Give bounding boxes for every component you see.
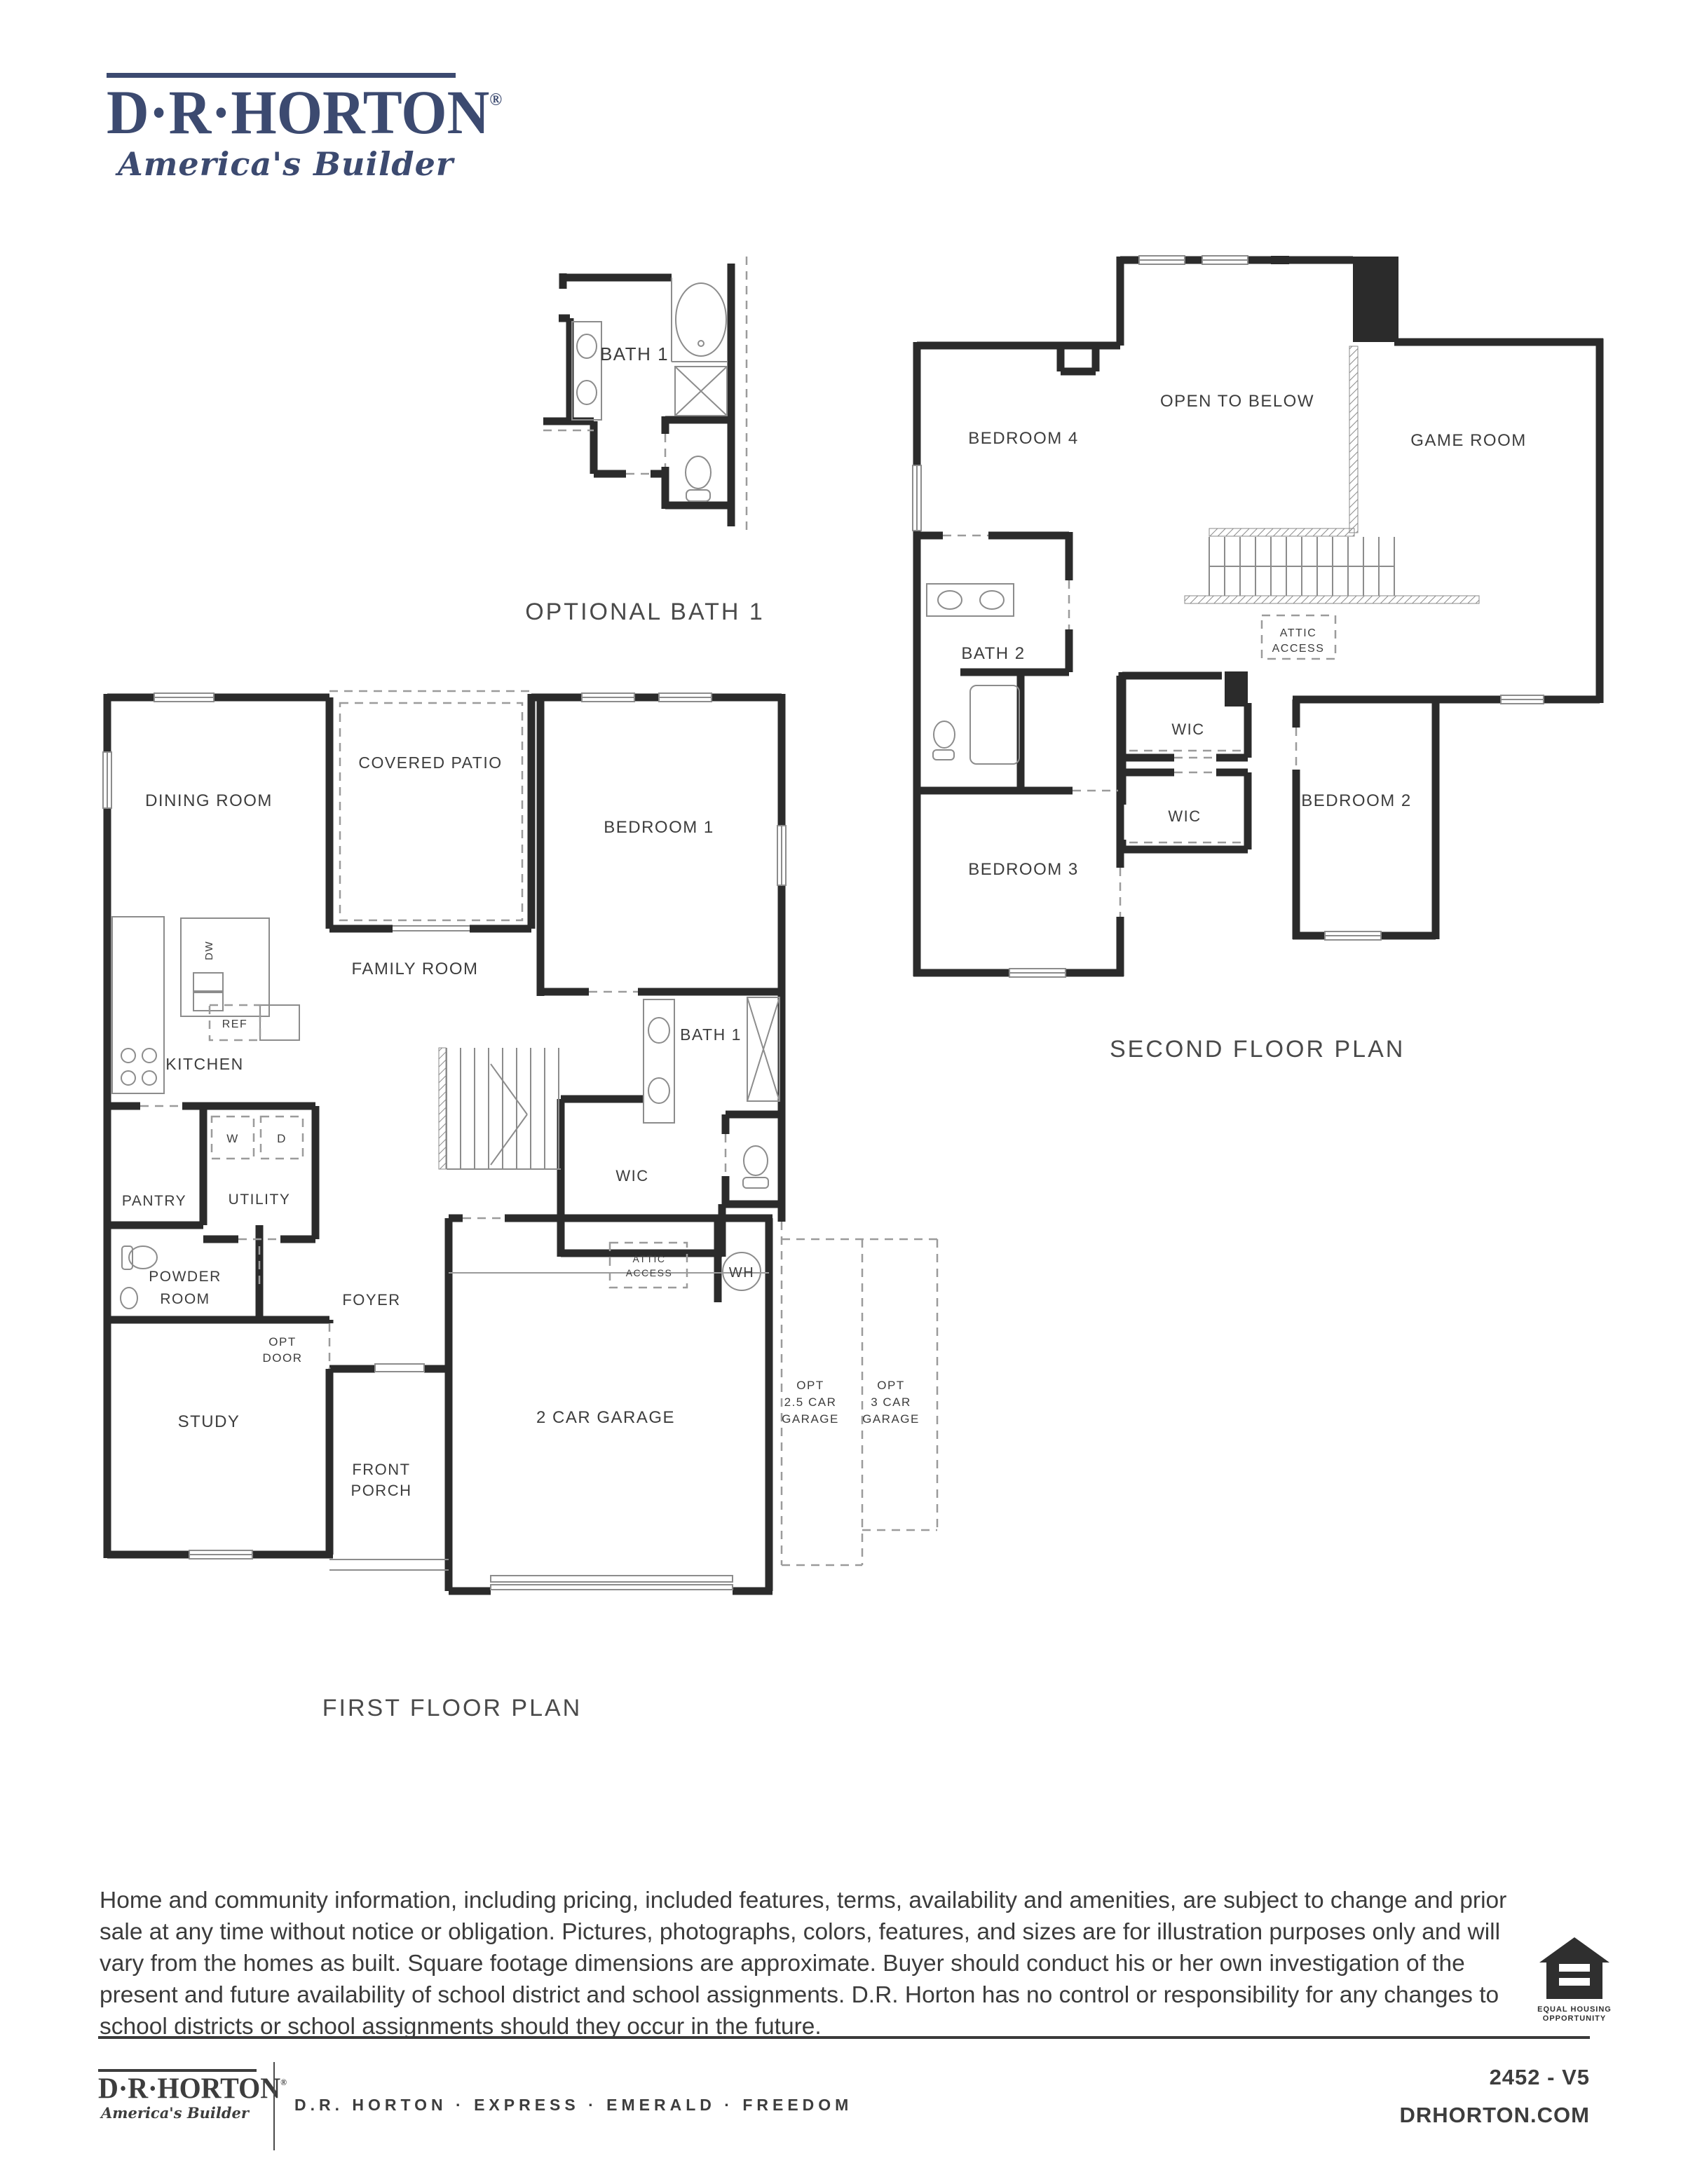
porch-steps [329,1559,449,1570]
label-study: STUDY [178,1412,240,1431]
floorplan-brochure-page: D·R·HORTON® America's Builder [0,0,1688,2184]
website-link[interactable]: DRHORTON.COM [1400,2103,1590,2128]
label-bedroom4: BEDROOM 4 [968,429,1079,448]
label-ref: REF [222,1018,248,1030]
label-opt3-2: 3 CAR [871,1395,911,1409]
label-opt3-3: GARAGE [862,1412,920,1426]
toilet-icon [686,456,711,489]
label-opt-door-1: OPT [268,1335,296,1349]
equal-housing-logo: EQUAL HOUSING OPPORTUNITY [1532,1936,1616,2023]
stairs-icon [1209,537,1394,596]
label-opt-door-2: DOOR [263,1351,303,1365]
front-door-icon [375,1364,424,1372]
label-wh: WH [729,1265,754,1281]
label-foyer: FOYER [342,1291,400,1309]
toilet-icon [744,1146,768,1175]
cooktop-icon [121,1049,135,1063]
label-dw: DW [203,941,215,960]
vanity-icon [927,584,1014,616]
label-bath1-optional: BATH 1 [600,343,669,364]
first-floor-diagram: DINING ROOM COVERED PATIO BEDROOM 1 FAMI… [98,685,948,1614]
label-bath1: BATH 1 [680,1025,742,1044]
logo-rule [107,73,456,78]
first-floor-title: FIRST FLOOR PLAN [301,1695,603,1722]
label-dryer: D [277,1132,287,1145]
eho-caption-2: OPPORTUNITY [1532,2014,1616,2023]
label-wic-lower: WIC [1168,807,1201,825]
garage-door-icon [491,1576,733,1582]
sink-icon [648,1078,669,1103]
label-attic-2: ACCESS [626,1267,673,1278]
label-family-room: FAMILY ROOM [352,960,479,978]
sink-icon [193,992,223,1011]
label-powder-2: ROOM [160,1291,210,1307]
plan-number: 2452 - V5 [1490,2065,1590,2090]
label-opt3-1: OPT [877,1379,904,1392]
label-porch-1: FRONT [352,1461,410,1478]
label-wic-upper: WIC [1171,721,1204,738]
label-bedroom3: BEDROOM 3 [968,860,1079,879]
footer-registered-mark: ® [280,2077,287,2087]
patio-outline [340,703,522,920]
label-porch-2: PORCH [351,1482,412,1499]
registered-mark: ® [489,90,502,110]
logo-tagline: America's Builder [107,145,502,183]
label-utility: UTILITY [229,1192,291,1208]
equal-housing-house-icon [1538,1936,1611,2000]
logo-text: D·R·HORTON [107,79,489,148]
footer-logo: D·R·HORTON® America's Builder [98,2069,259,2122]
tub-icon [970,685,1019,764]
label-dining: DINING ROOM [145,791,273,810]
sink-icon [577,334,597,358]
footer-logo-wordmark: D·R·HORTON® [98,2074,259,2103]
label-pantry: PANTRY [122,1193,186,1209]
second-floor-diagram: BEDROOM 4 OPEN TO BELOW GAME ROOM ATTIC … [908,251,1609,980]
sink-icon [193,973,223,991]
label-game-room: GAME ROOM [1410,431,1527,450]
label-opt25-1: OPT [796,1379,824,1392]
label-garage: 2 CAR GARAGE [536,1408,675,1427]
sink-icon [577,381,597,404]
footer-rule [98,2036,1590,2039]
label-open-to-below: OPEN TO BELOW [1160,392,1314,411]
label-opt25-3: GARAGE [782,1412,839,1426]
sink-icon [648,1018,669,1043]
label-bath2: BATH 2 [961,644,1025,663]
optional-bath-title: OPTIONAL BATH 1 [494,599,796,626]
optional-bath-diagram: BATH 1 [528,257,766,589]
sink-icon [121,1288,137,1309]
tub-icon [676,283,726,356]
label-covered-patio: COVERED PATIO [358,753,502,772]
label-bedroom1: BEDROOM 1 [604,818,714,837]
label-attic-access-1: ATTIC [1280,627,1317,639]
footer-brands: D.R. HORTON · EXPRESS · EMERALD · FREEDO… [294,2096,852,2115]
label-bedroom2: BEDROOM 2 [1301,791,1412,810]
patio-slider-icon [393,926,470,931]
label-attic-access-2: ACCESS [1272,643,1325,655]
disclaimer-text: Home and community information, includin… [100,1885,1530,2042]
label-kitchen: KITCHEN [165,1055,243,1073]
label-attic-1: ATTIC [633,1253,666,1264]
drhorton-logo: D·R·HORTON® America's Builder [107,73,502,183]
counter-icon [112,917,164,1093]
sink-icon [938,591,962,609]
sink-icon [980,591,1004,609]
footer-logo-tagline: America's Builder [98,2104,259,2122]
logo-wordmark: D·R·HORTON® [107,82,502,144]
second-floor-title: SECOND FLOOR PLAN [1110,1036,1404,1063]
label-washer: W [226,1132,239,1145]
label-wic: WIC [615,1167,648,1185]
label-powder-1: POWDER [149,1269,222,1285]
label-opt25-2: 2.5 CAR [784,1395,837,1409]
footer-logo-text: D·R·HORTON [98,2072,280,2105]
eho-caption-1: EQUAL HOUSING [1532,2005,1616,2014]
footer-divider [273,2062,275,2150]
